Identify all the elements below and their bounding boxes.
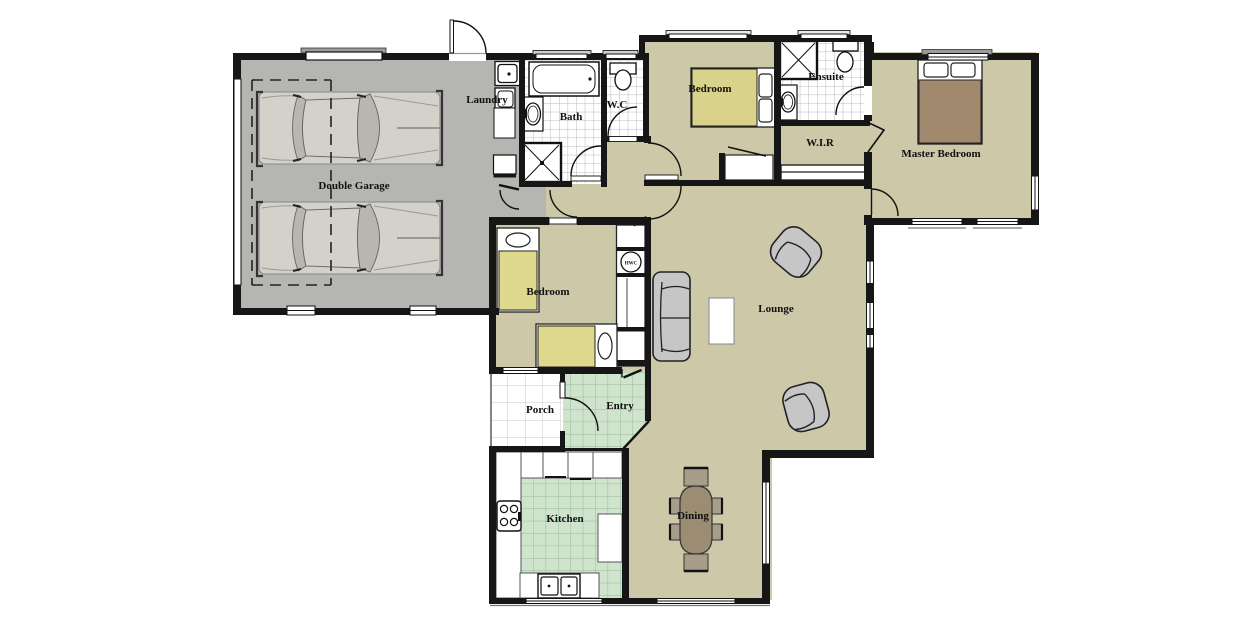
svg-text:W.I.R: W.I.R [806,137,835,149]
svg-text:Bath: Bath [560,111,583,123]
svg-text:Porch: Porch [526,404,554,416]
svg-text:Bedroom: Bedroom [526,286,569,298]
svg-text:Ensuite: Ensuite [808,71,844,83]
svg-text:Entry: Entry [606,400,634,412]
svg-text:W.C: W.C [607,99,628,111]
svg-text:HWC: HWC [625,262,638,267]
svg-text:Laundry: Laundry [466,94,508,106]
svg-text:Kitchen: Kitchen [546,513,583,525]
svg-text:Bedroom: Bedroom [688,83,731,95]
svg-text:Dining: Dining [677,510,709,522]
svg-text:Master Bedroom: Master Bedroom [901,148,980,160]
svg-text:Double Garage: Double Garage [318,180,389,192]
svg-text:Lounge: Lounge [758,303,794,315]
